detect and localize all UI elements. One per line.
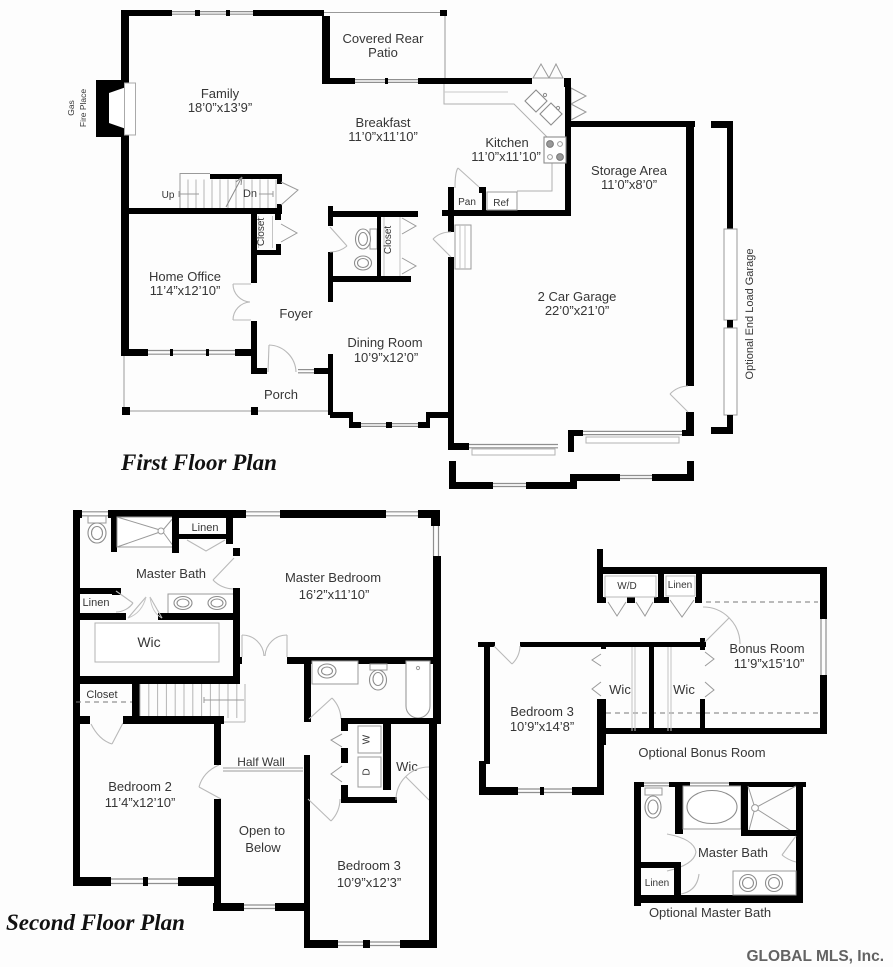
svg-text:W: W bbox=[362, 734, 373, 744]
svg-text:Master Bath: Master Bath bbox=[698, 845, 768, 860]
svg-text:Breakfast: Breakfast bbox=[356, 115, 411, 130]
svg-text:Dn: Dn bbox=[243, 188, 257, 200]
svg-text:11’4”x12’10”: 11’4”x12’10” bbox=[105, 795, 176, 810]
svg-text:Ref: Ref bbox=[493, 198, 509, 209]
svg-text:Below: Below bbox=[245, 840, 281, 855]
svg-text:Linen: Linen bbox=[192, 522, 219, 534]
svg-text:10’9”x12’3”: 10’9”x12’3” bbox=[337, 875, 401, 890]
svg-text:Optional End Load Garage: Optional End Load Garage bbox=[744, 249, 756, 380]
svg-text:Closet: Closet bbox=[383, 226, 394, 255]
svg-text:Bedroom 3: Bedroom 3 bbox=[510, 704, 574, 719]
svg-text:Optional Master Bath: Optional Master Bath bbox=[649, 905, 771, 920]
svg-text:Open to: Open to bbox=[239, 823, 285, 838]
svg-text:Closet: Closet bbox=[86, 689, 117, 701]
svg-text:Bedroom 3: Bedroom 3 bbox=[337, 858, 401, 873]
svg-text:Storage Area: Storage Area bbox=[591, 163, 668, 178]
svg-text:Bedroom 2: Bedroom 2 bbox=[108, 779, 172, 794]
svg-text:Kitchen: Kitchen bbox=[485, 135, 528, 150]
svg-text:First Floor Plan: First Floor Plan bbox=[120, 450, 277, 475]
svg-text:22’0”x21’0”: 22’0”x21’0” bbox=[545, 303, 609, 318]
svg-text:Dining Room: Dining Room bbox=[347, 335, 422, 350]
svg-text:Foyer: Foyer bbox=[279, 306, 313, 321]
svg-text:GLOBAL MLS, Inc.: GLOBAL MLS, Inc. bbox=[747, 948, 885, 965]
svg-text:Pan: Pan bbox=[458, 197, 476, 208]
svg-text:Wic: Wic bbox=[609, 682, 631, 697]
svg-text:Closet: Closet bbox=[256, 218, 267, 247]
svg-text:Wic: Wic bbox=[673, 682, 695, 697]
svg-text:16’2”x11’10”: 16’2”x11’10” bbox=[299, 587, 370, 602]
svg-text:Patio: Patio bbox=[368, 45, 398, 60]
svg-text:11’0”x11’10”: 11’0”x11’10” bbox=[471, 149, 541, 164]
svg-text:11’4”x12’10”: 11’4”x12’10” bbox=[150, 283, 221, 298]
svg-text:Fire Place: Fire Place bbox=[78, 89, 88, 128]
svg-text:11’9”x15’10”: 11’9”x15’10” bbox=[734, 656, 805, 671]
svg-text:Covered Rear: Covered Rear bbox=[343, 31, 425, 46]
svg-text:Wic: Wic bbox=[137, 634, 160, 650]
svg-text:Half Wall: Half Wall bbox=[237, 755, 285, 769]
svg-text:Family: Family bbox=[201, 86, 240, 101]
svg-text:Second Floor Plan: Second Floor Plan bbox=[6, 910, 185, 935]
svg-text:10’9”x12’0”: 10’9”x12’0” bbox=[354, 350, 418, 365]
svg-text:Gas: Gas bbox=[66, 100, 76, 116]
svg-text:Porch: Porch bbox=[264, 387, 298, 402]
svg-text:2 Car Garage: 2 Car Garage bbox=[538, 289, 617, 304]
svg-text:Wic: Wic bbox=[396, 759, 418, 774]
svg-text:D: D bbox=[362, 768, 373, 775]
svg-text:Linen: Linen bbox=[668, 580, 692, 591]
svg-text:11’0”x11’10”: 11’0”x11’10” bbox=[348, 129, 418, 144]
svg-text:Master Bath: Master Bath bbox=[136, 566, 206, 581]
svg-text:Linen: Linen bbox=[83, 597, 110, 609]
svg-text:Master Bedroom: Master Bedroom bbox=[285, 570, 381, 585]
svg-text:Up: Up bbox=[162, 190, 175, 201]
svg-text:Home Office: Home Office bbox=[149, 269, 221, 284]
svg-text:Optional Bonus Room: Optional Bonus Room bbox=[638, 745, 765, 760]
svg-text:18’0”x13’9”: 18’0”x13’9” bbox=[188, 100, 252, 115]
svg-text:W/D: W/D bbox=[617, 581, 636, 592]
svg-text:Linen: Linen bbox=[645, 878, 669, 889]
svg-text:11’0”x8’0”: 11’0”x8’0” bbox=[601, 177, 657, 192]
svg-text:10’9”x14’8”: 10’9”x14’8” bbox=[510, 719, 574, 734]
svg-text:Bonus Room: Bonus Room bbox=[729, 641, 804, 656]
